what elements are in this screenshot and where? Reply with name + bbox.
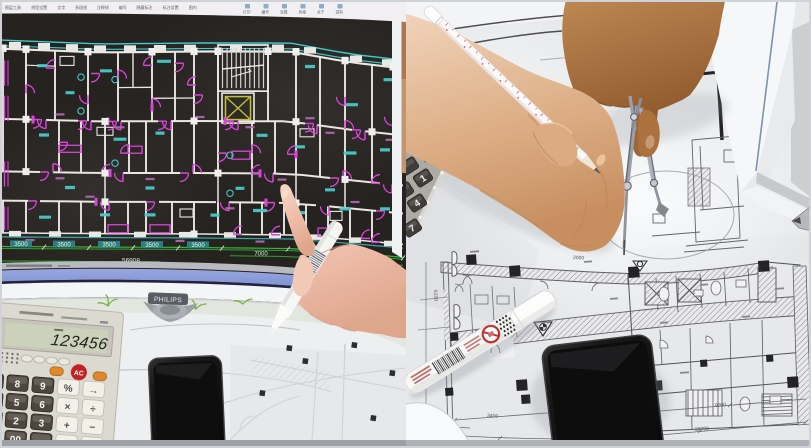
svg-text:3500: 3500 [102, 243, 116, 249]
svg-text:9000: 9000 [715, 402, 727, 409]
svg-text:7000: 7000 [254, 252, 268, 258]
svg-text:30700: 30700 [695, 426, 710, 433]
svg-text:打印: 打印 [243, 10, 251, 15]
svg-text:3500: 3500 [57, 242, 71, 248]
svg-text:−: − [89, 422, 96, 433]
svg-text:关于: 关于 [317, 10, 325, 15]
svg-text:+: + [63, 420, 70, 431]
svg-text:资料: 资料 [336, 10, 344, 15]
svg-text:6150: 6150 [432, 290, 439, 302]
svg-text:3500: 3500 [191, 243, 205, 249]
svg-text:多段线: 多段线 [75, 4, 87, 10]
svg-text:AC: AC [74, 370, 84, 378]
svg-text:编号: 编号 [119, 4, 127, 10]
svg-text:%: % [63, 383, 73, 395]
svg-text:×: × [64, 402, 71, 413]
svg-text:3400: 3400 [487, 413, 499, 420]
svg-text:线型设置: 线型设置 [31, 4, 47, 10]
svg-text:图内: 图内 [189, 4, 197, 10]
svg-text:→: → [88, 385, 99, 397]
svg-text:标注设置: 标注设置 [163, 4, 179, 10]
svg-text:克隆: 克隆 [280, 10, 288, 15]
svg-text:图层工具: 图层工具 [5, 4, 21, 10]
svg-text:3500: 3500 [145, 243, 159, 249]
svg-text:PHILIPS: PHILIPS [154, 296, 183, 304]
svg-text:隐藏标注: 隐藏标注 [136, 4, 152, 10]
svg-text:风格: 风格 [299, 10, 307, 15]
svg-text:编号: 编号 [262, 10, 270, 15]
svg-text:文字: 文字 [57, 4, 65, 10]
svg-text:2000: 2000 [573, 255, 585, 262]
svg-text:3500: 3500 [14, 242, 28, 248]
svg-text:注释线: 注释线 [97, 4, 109, 10]
